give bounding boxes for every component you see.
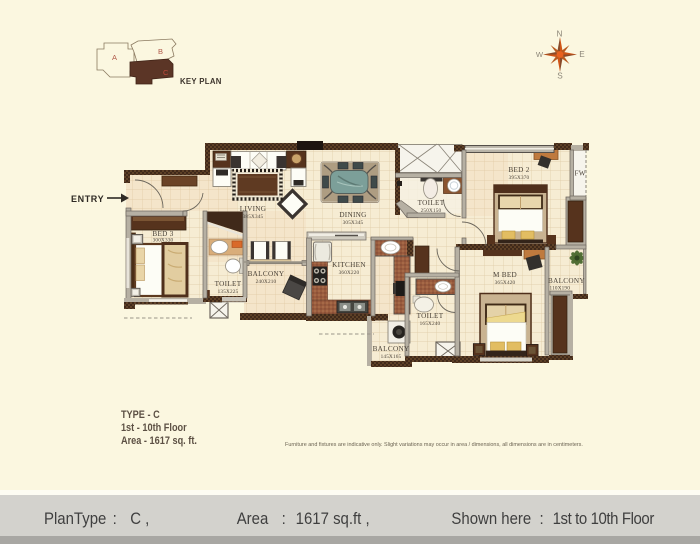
- svg-text:N: N: [557, 30, 563, 39]
- svg-text:1st - 10th Floor: 1st - 10th Floor: [121, 422, 187, 434]
- svg-text:360X220: 360X220: [339, 270, 360, 276]
- svg-text:E: E: [579, 50, 585, 59]
- svg-text:C: C: [163, 68, 169, 77]
- svg-text:300X330: 300X330: [153, 238, 174, 244]
- svg-text:385X345: 385X345: [243, 214, 264, 220]
- svg-text:145X165: 145X165: [381, 354, 402, 360]
- svg-text:BALCONY: BALCONY: [548, 277, 585, 285]
- svg-text:DINING: DINING: [339, 211, 366, 219]
- svg-text:1st to 10th Floor: 1st to 10th Floor: [553, 510, 655, 528]
- svg-text:BALCONY: BALCONY: [373, 345, 410, 353]
- svg-text::: :: [282, 510, 286, 528]
- svg-text:PlanType: PlanType: [44, 510, 106, 528]
- svg-text::: :: [539, 510, 543, 528]
- svg-text:250X150: 250X150: [421, 208, 442, 214]
- svg-text:LIVING: LIVING: [240, 205, 267, 213]
- svg-text:BALCONY: BALCONY: [248, 270, 285, 278]
- svg-text:110X190: 110X190: [550, 286, 571, 292]
- svg-text::: :: [113, 510, 117, 528]
- svg-text:305X345: 305X345: [343, 220, 364, 226]
- svg-text:TOILET: TOILET: [215, 280, 242, 288]
- svg-text:A: A: [112, 53, 117, 62]
- svg-text:Shown here: Shown here: [451, 510, 531, 528]
- svg-text:KITCHEN: KITCHEN: [332, 261, 366, 269]
- svg-text:165X240: 165X240: [420, 321, 441, 327]
- svg-text:240X210: 240X210: [256, 279, 277, 285]
- svg-text:Area - 1617 sq. ft.: Area - 1617 sq. ft.: [121, 435, 197, 447]
- svg-text:BED 2: BED 2: [508, 166, 529, 174]
- svg-text:365X420: 365X420: [495, 280, 516, 286]
- svg-text:135X225: 135X225: [218, 289, 239, 295]
- svg-text:B: B: [158, 47, 163, 56]
- svg-text:TOILET: TOILET: [417, 312, 444, 320]
- svg-text:S: S: [557, 72, 563, 81]
- svg-text:KEY PLAN: KEY PLAN: [180, 77, 222, 86]
- svg-text:TOILET: TOILET: [418, 199, 445, 207]
- svg-text:395X370: 395X370: [509, 175, 530, 181]
- svg-text:Furniture and fixtures are ind: Furniture and fixtures are indicative on…: [285, 442, 583, 448]
- svg-text:ENTRY: ENTRY: [71, 194, 104, 204]
- svg-text:W: W: [536, 50, 544, 59]
- svg-text:FW: FW: [575, 170, 586, 178]
- svg-text:M BED: M BED: [493, 271, 517, 279]
- svg-text:Area: Area: [237, 510, 269, 528]
- svg-text:C ,: C ,: [130, 510, 149, 528]
- svg-text:TYPE - C: TYPE - C: [121, 409, 160, 421]
- svg-text:1617 sq.ft ,: 1617 sq.ft ,: [296, 510, 370, 528]
